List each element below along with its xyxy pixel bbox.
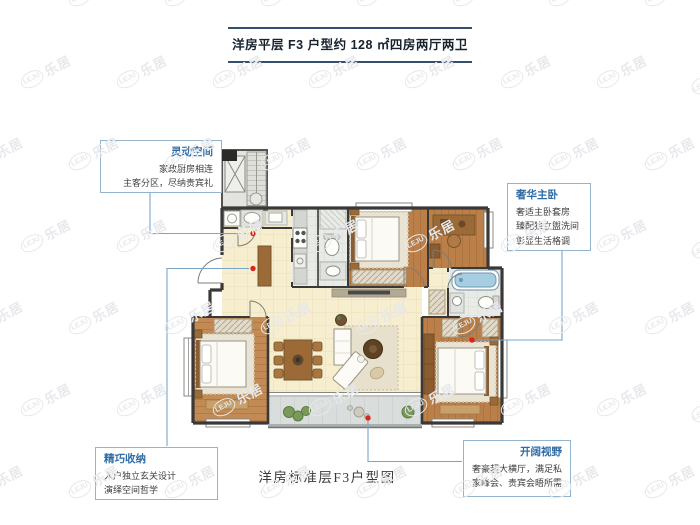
desk-icon: [433, 215, 475, 235]
wardrobe-icon: [352, 270, 406, 284]
callout-line: 奢豪超大横厅，满足私: [472, 462, 562, 477]
toilet-icon: [479, 297, 494, 309]
nightstand-icon: [490, 337, 498, 345]
toilet-icon: [325, 239, 339, 256]
nightstand-icon: [194, 390, 202, 398]
kitchen: [293, 210, 307, 284]
callout-line: 家峰会、贵宾会晤所需: [472, 476, 562, 491]
callout-title: 精巧收纳: [104, 453, 209, 468]
closet-icon: [482, 319, 498, 337]
marker-storage: [250, 266, 255, 271]
entry-door-icon: [198, 258, 222, 283]
callout-title: 奢华主卧: [516, 189, 582, 204]
chair-icon: [313, 342, 322, 351]
sink-icon: [269, 213, 282, 222]
washer-icon: [224, 211, 240, 226]
stove-icon: [293, 228, 307, 248]
chair-icon: [274, 342, 283, 351]
tv-icon: [348, 291, 390, 295]
chair-icon: [274, 356, 283, 365]
closet-icon: [429, 290, 445, 314]
entry-cabinet-icon: [258, 246, 271, 286]
nightstand-icon: [194, 330, 202, 338]
callout-line: 家政厨房相连: [109, 162, 213, 177]
marker-master-suite: [469, 337, 474, 342]
callout-line: 主客分区，尽纳贵宾礼: [109, 176, 213, 191]
callout-line: 奢适主卧套房: [516, 205, 582, 220]
nightstand-icon: [490, 397, 498, 405]
nightstand-icon: [350, 263, 359, 270]
closet-icon: [214, 319, 252, 333]
callout-line: 臻配独立盥洗间: [516, 219, 582, 234]
bench-icon: [440, 405, 480, 414]
page-title: 洋房平层 F3 户型约 128 ㎡四房两厅两卫: [218, 34, 482, 53]
bench-icon: [206, 400, 248, 409]
callout-master-suite: 奢华主卧 奢适主卧套房 臻配独立盥洗间 彰显生活格调: [507, 183, 591, 251]
callout-flex-space: 灵动空间 家政厨房相连 主客分区，尽纳贵宾礼: [100, 140, 222, 193]
title-rule-bottom: [228, 61, 472, 63]
sliding-door: [268, 393, 422, 397]
plant-icon: [402, 406, 414, 418]
callout-title: 灵动空间: [109, 146, 213, 161]
plan-caption: 洋房标准层F3户型图: [237, 466, 417, 486]
chair-icon: [313, 369, 322, 378]
bedroom-2: [350, 203, 412, 284]
vanity-basin-icon: [453, 297, 462, 306]
plant-icon: [302, 407, 311, 416]
bathroom-basin-icon: [326, 266, 340, 276]
marker-flex-space: [250, 231, 255, 236]
shower-icon: [320, 209, 346, 229]
callout-line: 演绎空间哲学: [104, 483, 209, 498]
chair-icon: [448, 235, 461, 248]
title-rule-top: [228, 27, 472, 29]
chair-icon: [274, 369, 283, 378]
washbasin-icon: [244, 213, 260, 224]
chair-icon: [313, 356, 322, 365]
callout-storage: 精巧收纳 入户独立玄关设计 演绎空间哲学: [95, 447, 218, 500]
callout-title: 开阔视野: [472, 446, 562, 461]
marker-view: [365, 415, 370, 420]
closet-icon: [442, 319, 458, 337]
plant-icon: [336, 315, 347, 326]
floor-plan-page: 洋房平层 F3 户型约 128 ㎡四房两厅两卫 灵动空间 家政厨房相连 主客分区…: [0, 0, 700, 525]
callout-open-view: 开阔视野 奢豪超大横厅，满足私 家峰会、贵宾会晤所需: [463, 440, 571, 497]
patio-table-icon: [354, 407, 364, 417]
callout-line: 彰显生活格调: [516, 234, 582, 249]
callout-line: 入户独立玄关设计: [104, 469, 209, 484]
